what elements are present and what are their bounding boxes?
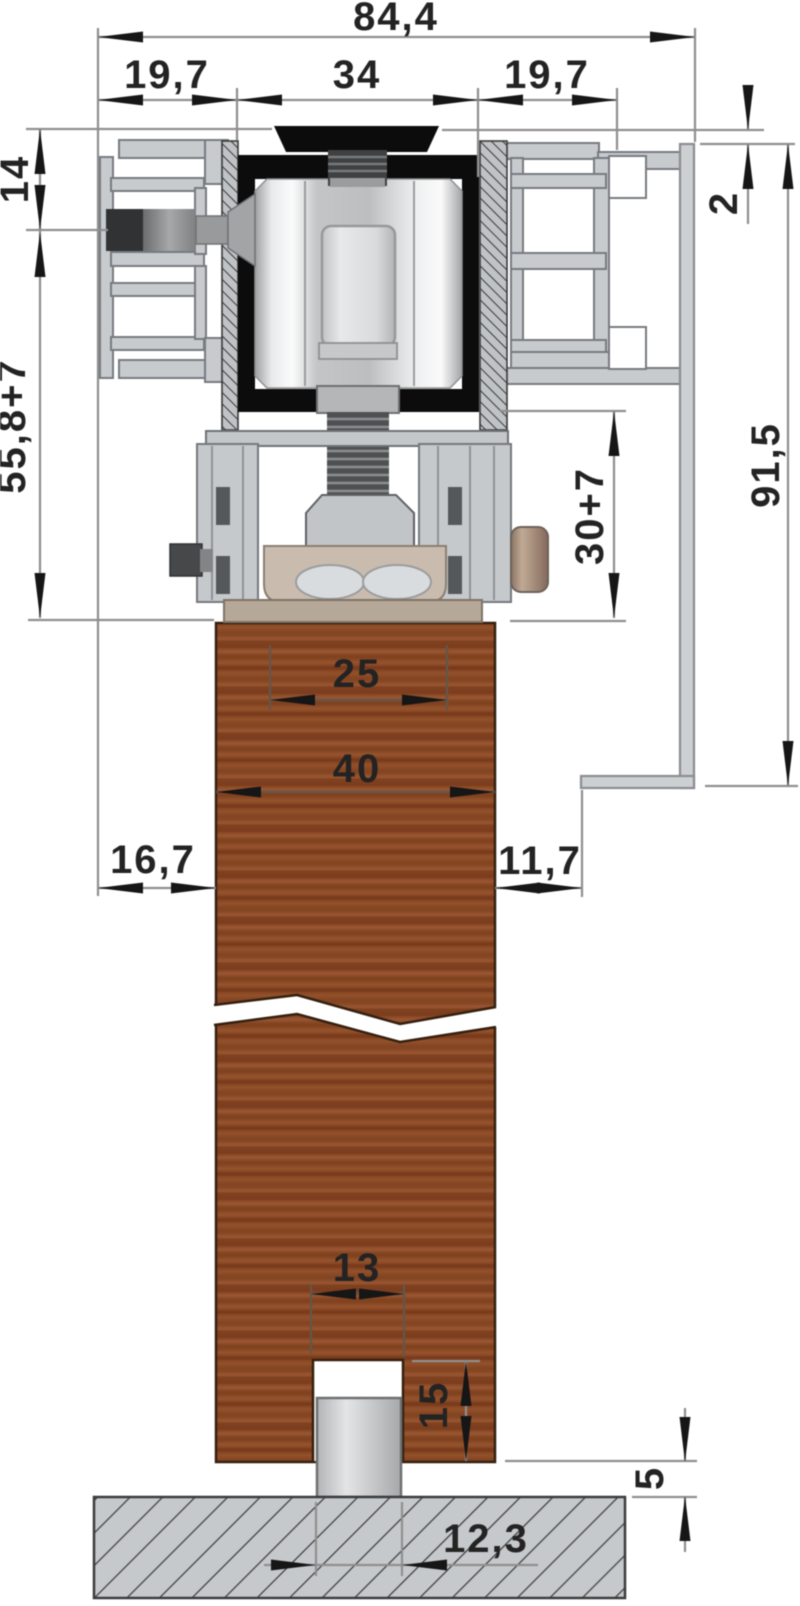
svg-text:13: 13: [333, 1246, 382, 1290]
svg-text:16,7: 16,7: [110, 838, 196, 882]
svg-text:11,7: 11,7: [498, 839, 582, 883]
svg-text:40: 40: [333, 747, 382, 791]
svg-text:5: 5: [628, 1466, 672, 1490]
svg-text:84,4: 84,4: [353, 0, 439, 39]
svg-text:19,7: 19,7: [504, 53, 590, 97]
svg-text:30+7: 30+7: [568, 467, 612, 565]
svg-text:2: 2: [702, 191, 746, 215]
svg-text:15: 15: [412, 1381, 456, 1430]
svg-text:19,7: 19,7: [124, 53, 210, 97]
svg-text:12,3: 12,3: [443, 1517, 529, 1561]
svg-text:34: 34: [333, 53, 382, 97]
svg-text:55,8+7: 55,8+7: [0, 358, 34, 493]
svg-text:91,5: 91,5: [744, 422, 788, 508]
svg-text:25: 25: [333, 652, 382, 696]
svg-text:14: 14: [0, 155, 37, 204]
